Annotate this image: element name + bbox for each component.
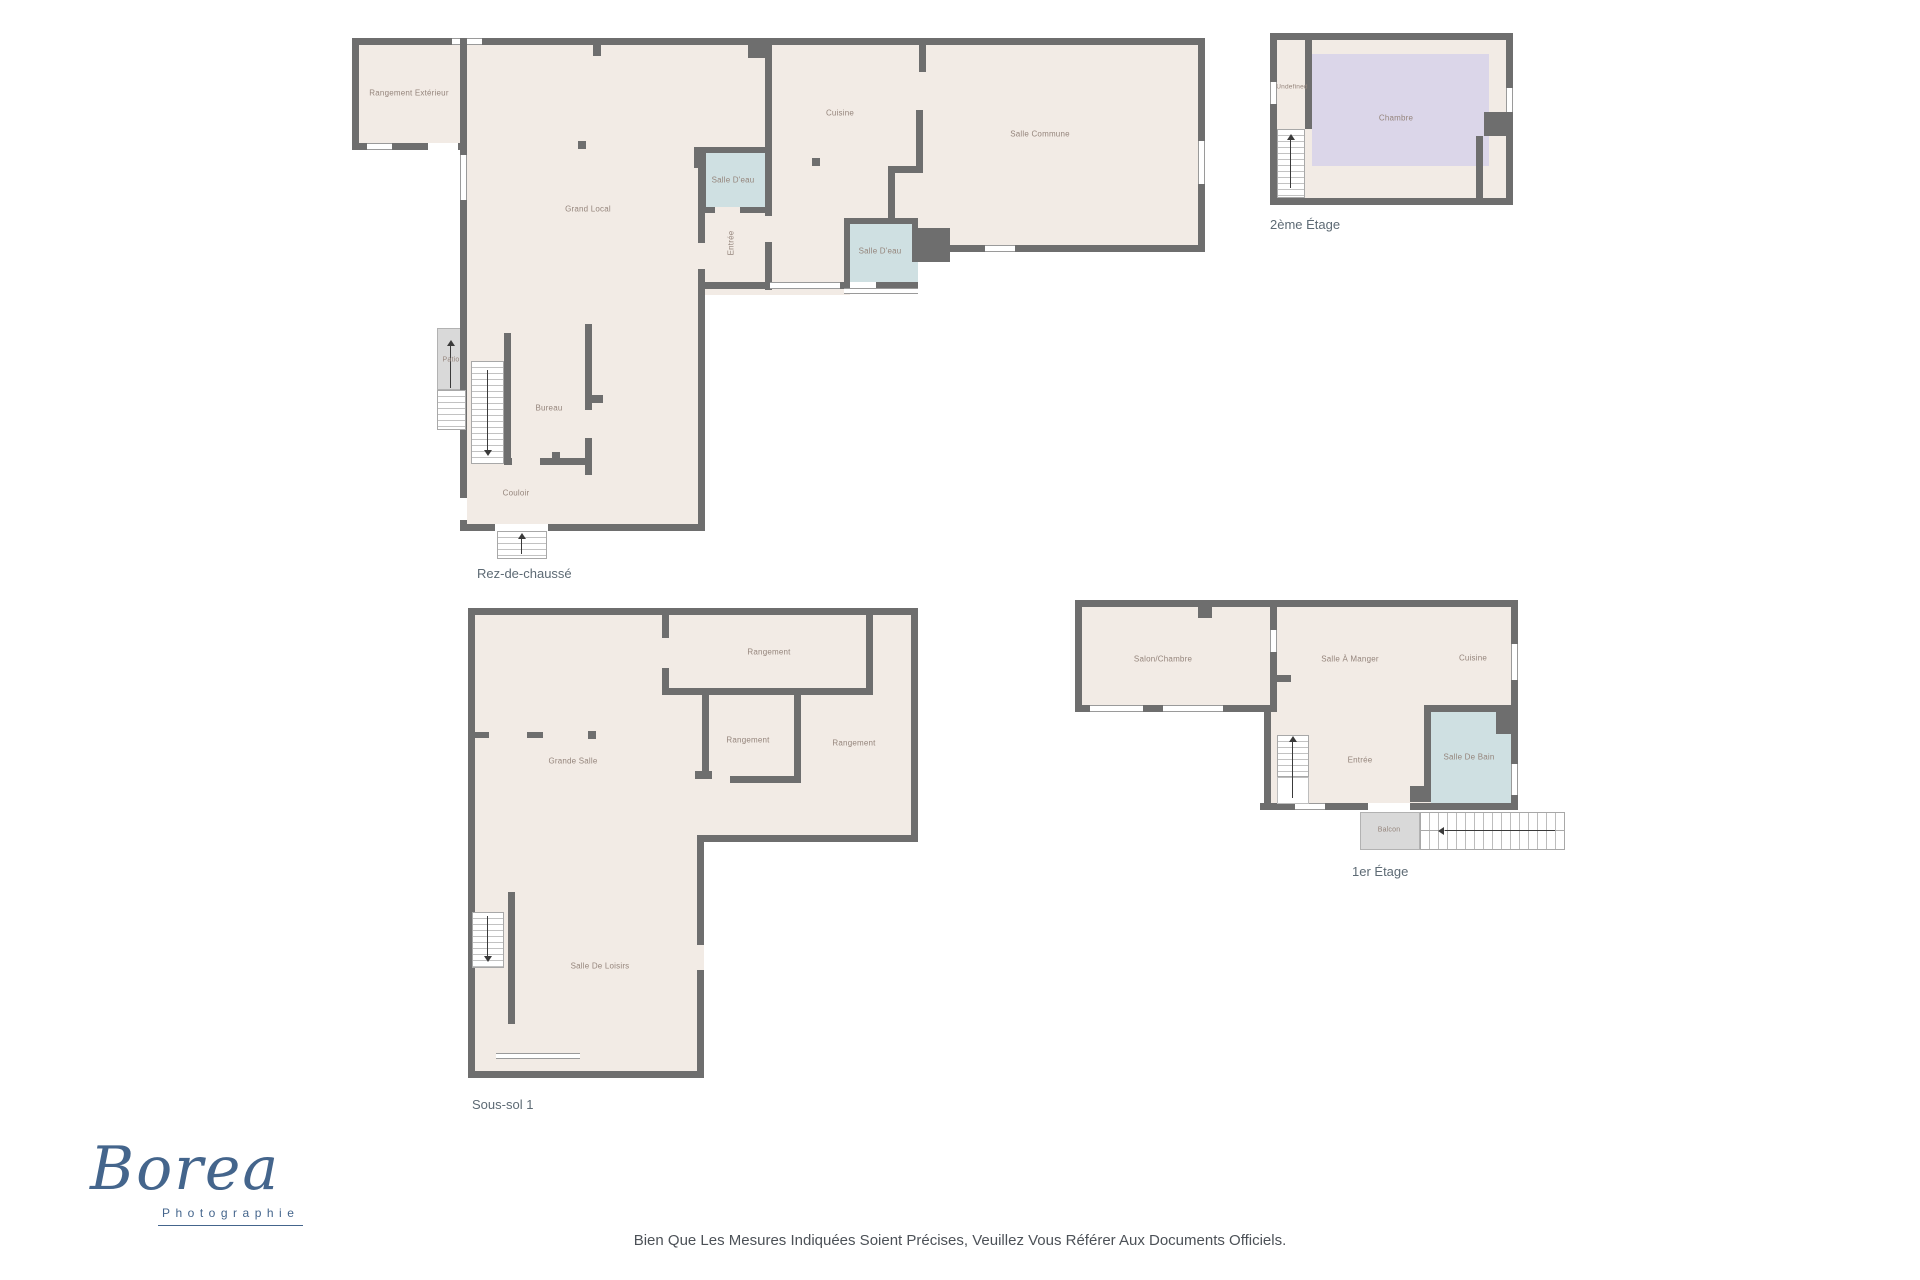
room-label-entree-1er: Entrée — [1348, 756, 1373, 765]
wall — [1075, 600, 1082, 712]
wall — [1264, 712, 1271, 810]
stairs-direction-arrow — [1289, 736, 1297, 742]
window — [1270, 630, 1277, 652]
window — [1511, 644, 1518, 680]
logo-subtitle: Photographie — [158, 1206, 303, 1226]
logo-script-text: Borea — [90, 1134, 280, 1204]
wall — [1198, 600, 1212, 618]
window — [1163, 705, 1223, 712]
wall — [1270, 600, 1277, 712]
room-label-salle-a-manger: Salle À Manger — [1321, 655, 1379, 664]
room-label-salon-chambre: Salon/Chambre — [1134, 655, 1192, 664]
window — [1295, 803, 1325, 810]
floor-plan-1er-etage: Salon/Chambre Salle À Manger Cuisine Sal… — [0, 0, 1920, 1280]
wall — [1075, 600, 1518, 607]
wall — [1277, 675, 1291, 682]
wall — [1424, 712, 1431, 788]
room-label-salle-de-bain: Salle De Bain — [1443, 753, 1494, 762]
floor-caption-1er-etage: 1er Étage — [1352, 864, 1408, 879]
stairs-landing — [1277, 777, 1309, 804]
floor-plan-page: Rangement Extérieur Cuisine Salle Commun… — [0, 0, 1920, 1280]
wall — [1496, 712, 1518, 734]
stairs-direction-arrow — [1445, 830, 1555, 831]
room-label-balcon: Balcon — [1378, 827, 1401, 834]
room-label-cuisine-1er: Cuisine — [1459, 654, 1487, 663]
door-opening — [1368, 803, 1410, 810]
wall — [1424, 705, 1518, 712]
window — [1511, 764, 1518, 795]
window — [1090, 705, 1143, 712]
disclaimer-text: Bien Que Les Mesures Indiquées Soient Pr… — [0, 1232, 1920, 1249]
stairs-direction-arrow — [1292, 740, 1293, 798]
stairs-direction-arrow — [1438, 827, 1444, 835]
wall — [1410, 786, 1431, 802]
